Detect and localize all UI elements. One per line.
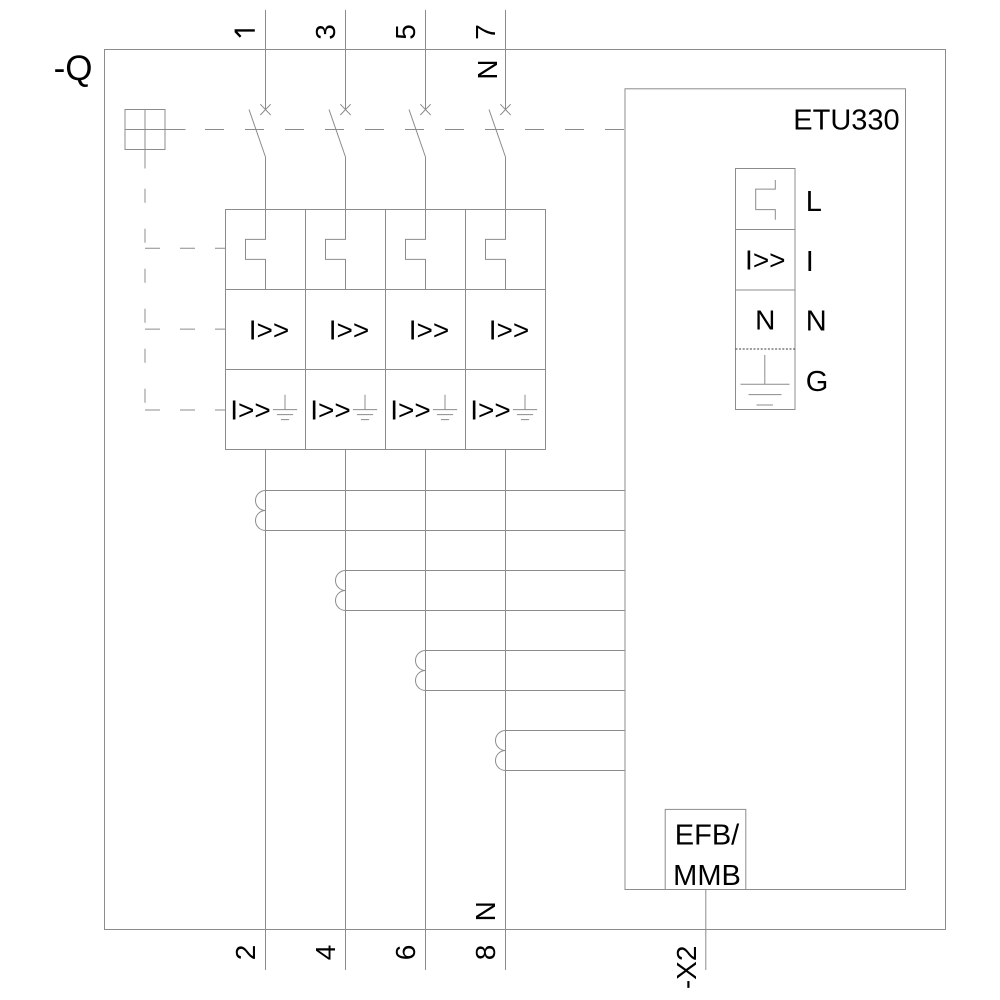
svg-text:8: 8 xyxy=(470,945,501,961)
svg-text:ETU330: ETU330 xyxy=(793,104,899,136)
svg-text:G: G xyxy=(806,366,829,398)
svg-text:L: L xyxy=(806,186,822,218)
svg-text:I: I xyxy=(806,246,814,278)
svg-text:I>>: I>> xyxy=(489,315,529,346)
svg-text:N: N xyxy=(470,901,501,921)
svg-text:I>>: I>> xyxy=(249,315,289,346)
svg-text:EFB/: EFB/ xyxy=(675,819,740,851)
svg-text:6: 6 xyxy=(390,945,421,961)
svg-text:I>>: I>> xyxy=(230,395,270,426)
svg-text:-Q: -Q xyxy=(54,49,93,88)
svg-text:N: N xyxy=(472,59,503,79)
svg-text:2: 2 xyxy=(230,945,261,961)
svg-text:3: 3 xyxy=(310,24,341,40)
svg-text:4: 4 xyxy=(310,945,341,961)
svg-text:N: N xyxy=(755,305,775,336)
svg-text:MMB: MMB xyxy=(673,860,741,892)
svg-text:7: 7 xyxy=(470,24,501,40)
svg-text:I>>: I>> xyxy=(310,395,350,426)
svg-text:-X2: -X2 xyxy=(671,946,702,990)
svg-text:I>>: I>> xyxy=(329,315,369,346)
svg-text:N: N xyxy=(806,306,827,338)
svg-text:I>>: I>> xyxy=(470,395,510,426)
svg-text:I>>: I>> xyxy=(409,315,449,346)
svg-text:I>>: I>> xyxy=(390,395,430,426)
svg-text:5: 5 xyxy=(390,24,421,40)
svg-text:I>>: I>> xyxy=(745,245,785,276)
